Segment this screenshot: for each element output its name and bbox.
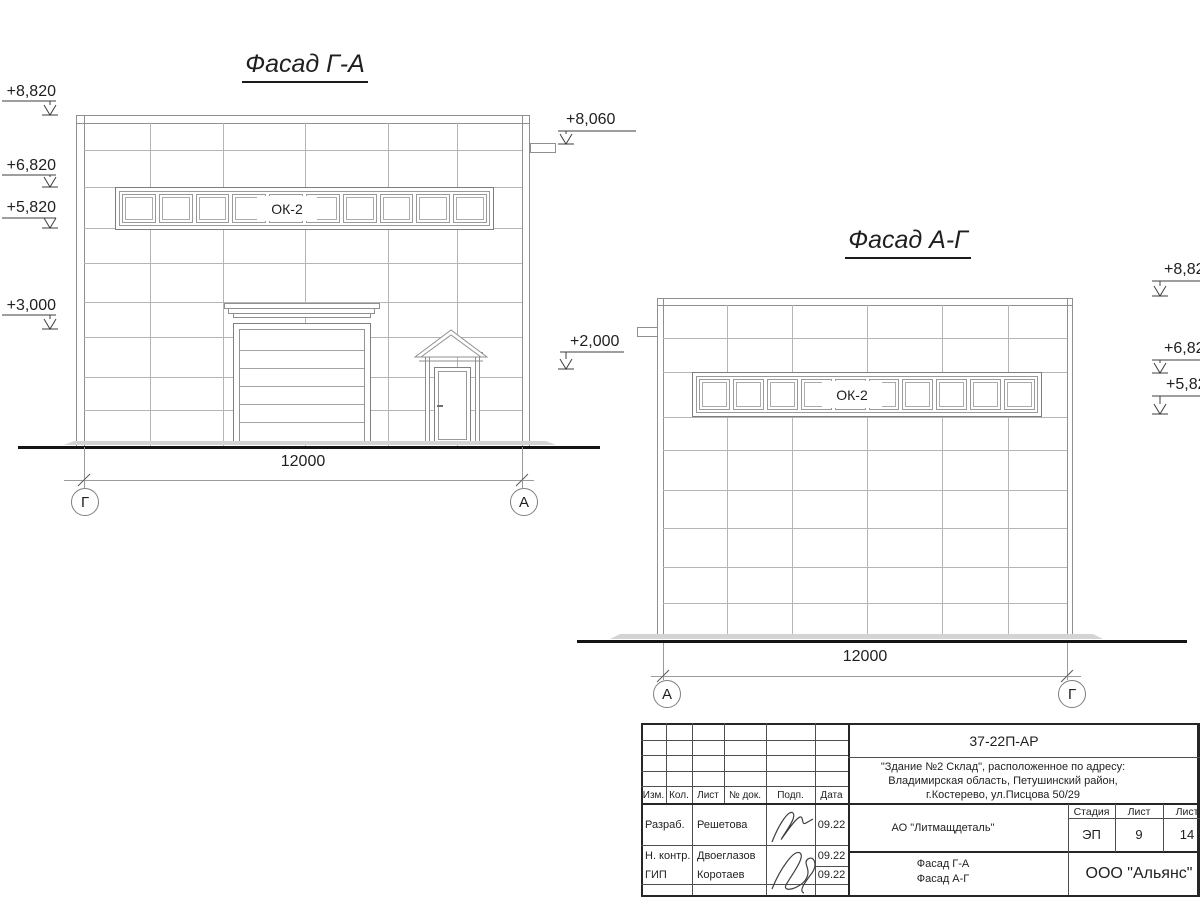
panel-joint (388, 123, 389, 447)
panel-joint (150, 123, 151, 447)
sheet-header: Лист (1115, 805, 1163, 818)
facade-ga-parapet-line (76, 123, 530, 124)
panel-joint (663, 567, 1067, 568)
rev-header-doc: № док. (724, 787, 766, 803)
facade-ag-edge-line-left (663, 298, 664, 639)
window-pane (196, 194, 230, 223)
project-address-line: "Здание №2 Склад", расположенное по адре… (853, 760, 1153, 774)
panel-joint (84, 263, 522, 264)
sheets-total: 14 (1163, 819, 1200, 850)
title-block: 37-22П-АР "Здание №2 Склад", расположенн… (641, 723, 1200, 897)
signer-role: Н. контр. (645, 845, 692, 866)
elevation-mark: +2,000 (570, 333, 619, 351)
ground-line (18, 446, 600, 449)
elevation-arrow-icon (1152, 281, 1200, 296)
facade-ga-edge-line-left (84, 115, 85, 447)
elevation-arrow-icon (2, 218, 58, 228)
panel-joint (663, 338, 1067, 339)
dimension-line (64, 480, 534, 481)
window-pane (122, 194, 156, 223)
window-mark-label: ОК-2 (257, 196, 317, 221)
window-pane (970, 379, 1001, 410)
window-pane (343, 194, 377, 223)
elevation-mark: +6,82 (1164, 340, 1200, 358)
sheets-header: Лист (1163, 805, 1200, 818)
stage-header: Стадия (1068, 805, 1115, 818)
panel-joint (663, 490, 1067, 491)
roof-drain-stub (530, 143, 556, 153)
signature (766, 806, 816, 846)
window-pane (902, 379, 933, 410)
signer-role: Разраб. (645, 804, 692, 845)
panel-joint (1008, 305, 1009, 639)
panel-joint (867, 305, 868, 639)
company-name: ООО "Альянс" (1083, 853, 1195, 895)
stage-value: ЭП (1068, 819, 1115, 850)
axis-bubble-g: Г (1058, 680, 1086, 708)
axis-bubble-g: Г (71, 488, 99, 516)
rev-header-kol: Кол. (666, 787, 692, 803)
elevation-arrow-icon (1152, 360, 1200, 373)
window-mark-label: ОК-2 (822, 381, 882, 408)
gate-slat-line (240, 368, 364, 369)
table-line (641, 771, 848, 772)
extension-line (663, 643, 664, 680)
project-address-line: Владимирская область, Петушинский район, (853, 774, 1153, 788)
title-block-border (641, 895, 1200, 897)
facade-ag-building-outline (657, 298, 1073, 639)
project-address-line: г.Костерево, ул.Писцова 50/29 (853, 788, 1153, 802)
gate-slat-line (240, 422, 364, 423)
canopy-post (475, 356, 480, 444)
elevation-mark: +8,060 (566, 111, 615, 129)
sheet-name-line: Фасад А-Г (853, 870, 1033, 887)
facade-ag-parapet-line (657, 305, 1073, 306)
elevation-arrow-icon (2, 101, 58, 115)
panel-joint (663, 603, 1067, 604)
rev-header-data: Дата (815, 787, 848, 803)
entrance-door-leaf (438, 371, 467, 440)
gate-slat-line (240, 350, 364, 351)
elevation-arrow-icon (558, 352, 624, 369)
axis-bubble-a: А (653, 680, 681, 708)
window-pane (159, 194, 193, 223)
extension-line (1067, 643, 1068, 680)
panel-joint (663, 450, 1067, 451)
elevation-mark: +5,820 (2, 199, 56, 217)
sheet-number: 9 (1115, 819, 1163, 850)
table-line (641, 755, 848, 756)
panel-joint (663, 417, 1067, 418)
elevation-arrow-icon (2, 315, 58, 329)
roof-drain-stub (637, 327, 658, 337)
signer-role: ГИП (645, 866, 692, 884)
window-pane (936, 379, 967, 410)
axis-bubble-a: А (510, 488, 538, 516)
panel-joint (223, 123, 224, 447)
dimension-line (651, 676, 1081, 677)
window-pane (733, 379, 764, 410)
rev-header-izm: Изм. (641, 787, 666, 803)
signer-name: Двоеглазов (697, 845, 766, 866)
elevation-arrow-icon (558, 131, 636, 144)
dimension-value: 12000 (805, 648, 925, 666)
extension-line (84, 447, 85, 488)
elevation-mark: +8,820 (2, 83, 56, 101)
elevation-arrow-icon (2, 175, 58, 187)
window-pane (699, 379, 730, 410)
panel-joint (663, 528, 1067, 529)
gate-canopy-edge (233, 313, 371, 318)
drawing-sheet: Фасад Г-А ОК-2 12000 (0, 0, 1200, 900)
facade-ag-title: Фасад А-Г (833, 226, 983, 255)
blind-area (610, 634, 1103, 639)
panel-joint (84, 150, 522, 151)
ground-line (577, 640, 1187, 643)
elevation-arrow-icon (1152, 396, 1200, 414)
panel-joint (727, 305, 728, 639)
doc-number: 37-22П-АР (848, 727, 1160, 755)
window-pane (416, 194, 450, 223)
elevation-mark: +6,820 (2, 157, 56, 175)
gate-slat-line (240, 404, 364, 405)
window-pane (453, 194, 487, 223)
facade-ga-edge-line-right (522, 115, 523, 447)
dimension-value: 12000 (243, 453, 363, 471)
panel-joint (792, 305, 793, 639)
table-line (848, 757, 1200, 758)
panel-joint (942, 305, 943, 639)
elevation-mark: +8,82 (1164, 261, 1200, 279)
table-line (641, 740, 848, 741)
gate-slat-line (240, 386, 364, 387)
rev-header-list: Лист (692, 787, 724, 803)
extension-line (522, 447, 523, 488)
signer-date: 09.22 (815, 804, 848, 845)
window-pane (1004, 379, 1035, 410)
blind-area (64, 441, 556, 445)
rev-header-podp: Подп. (766, 787, 815, 803)
title-block-border (641, 723, 643, 897)
table-line (692, 723, 693, 895)
window-pane (380, 194, 414, 223)
facade-ag-edge-line-right (1067, 298, 1068, 639)
signer-name: Решетова (697, 804, 766, 845)
elevation-mark: +5,82 (1166, 376, 1200, 394)
signature (764, 845, 820, 895)
facade-ga-title: Фасад Г-А (230, 50, 380, 79)
canopy-post (425, 356, 430, 444)
client-name: АО "Литмащдеталь" (868, 805, 1018, 851)
signer-name: Коротаев (697, 866, 766, 884)
window-pane (767, 379, 798, 410)
elevation-mark: +3,000 (2, 297, 56, 315)
